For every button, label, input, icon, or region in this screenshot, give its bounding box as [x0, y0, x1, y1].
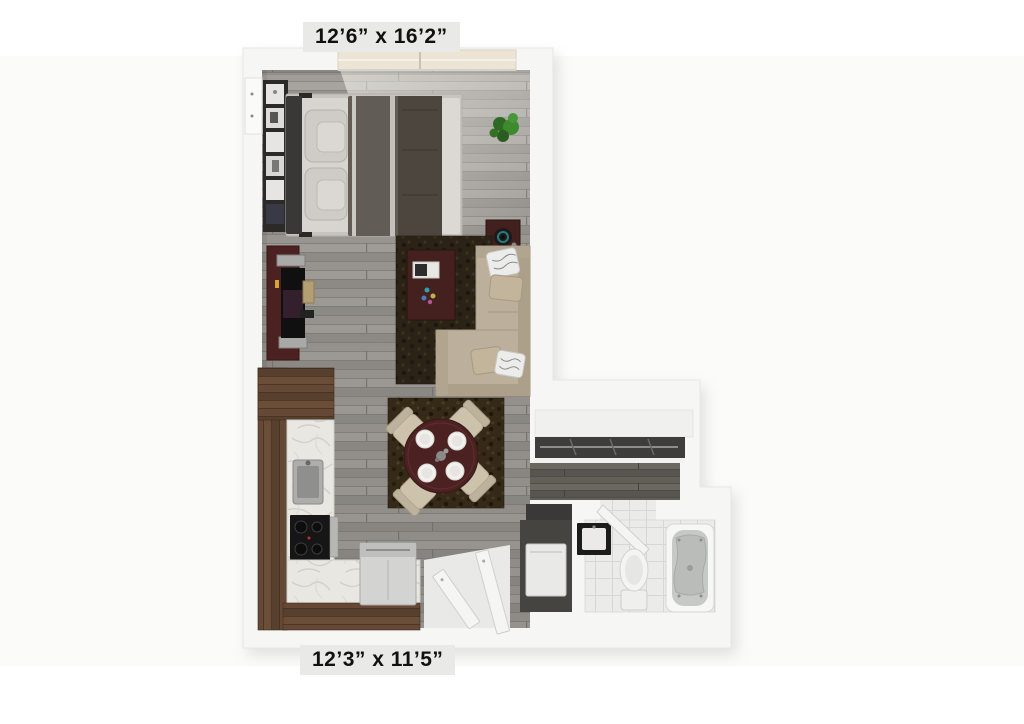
- closet: [530, 410, 693, 500]
- cabinet-front-band: [283, 603, 420, 630]
- washer: [526, 544, 566, 596]
- closet-floor: [530, 463, 680, 500]
- headboard: [286, 96, 302, 234]
- coffee-table: [407, 250, 455, 320]
- left-wall-door: [245, 78, 262, 134]
- sofa-pillow-tan-1: [489, 274, 523, 301]
- dimension-label-bottom: 12’3” x 11’5”: [300, 645, 455, 675]
- window: [338, 50, 516, 70]
- bathtub: [666, 524, 714, 612]
- dimension-label-top: 12’6” x 16’2”: [303, 22, 460, 52]
- floor-plan-render: [0, 0, 1024, 724]
- toilet: [620, 549, 648, 610]
- refrigerator: [360, 543, 416, 605]
- sofa-pillow-white-2: [494, 350, 526, 378]
- soundbar-bottom: [279, 337, 307, 348]
- entry: [424, 545, 510, 634]
- dining-table: [404, 419, 478, 493]
- vanity-sink: [577, 523, 611, 555]
- bookshelf: [263, 80, 288, 232]
- sink: [293, 460, 323, 504]
- bed: [286, 93, 462, 237]
- utility-closet: [520, 504, 572, 612]
- foot-throw: [398, 96, 442, 236]
- sofa-pillow-white-1: [486, 247, 521, 279]
- pantry-cabinet: [258, 368, 334, 420]
- soundbar-top: [277, 255, 305, 266]
- dining-area: [385, 398, 504, 517]
- floor-plan: 12’6” x 16’2” 12’3” x 11’5”: [0, 0, 1024, 724]
- decor-gold: [303, 281, 314, 303]
